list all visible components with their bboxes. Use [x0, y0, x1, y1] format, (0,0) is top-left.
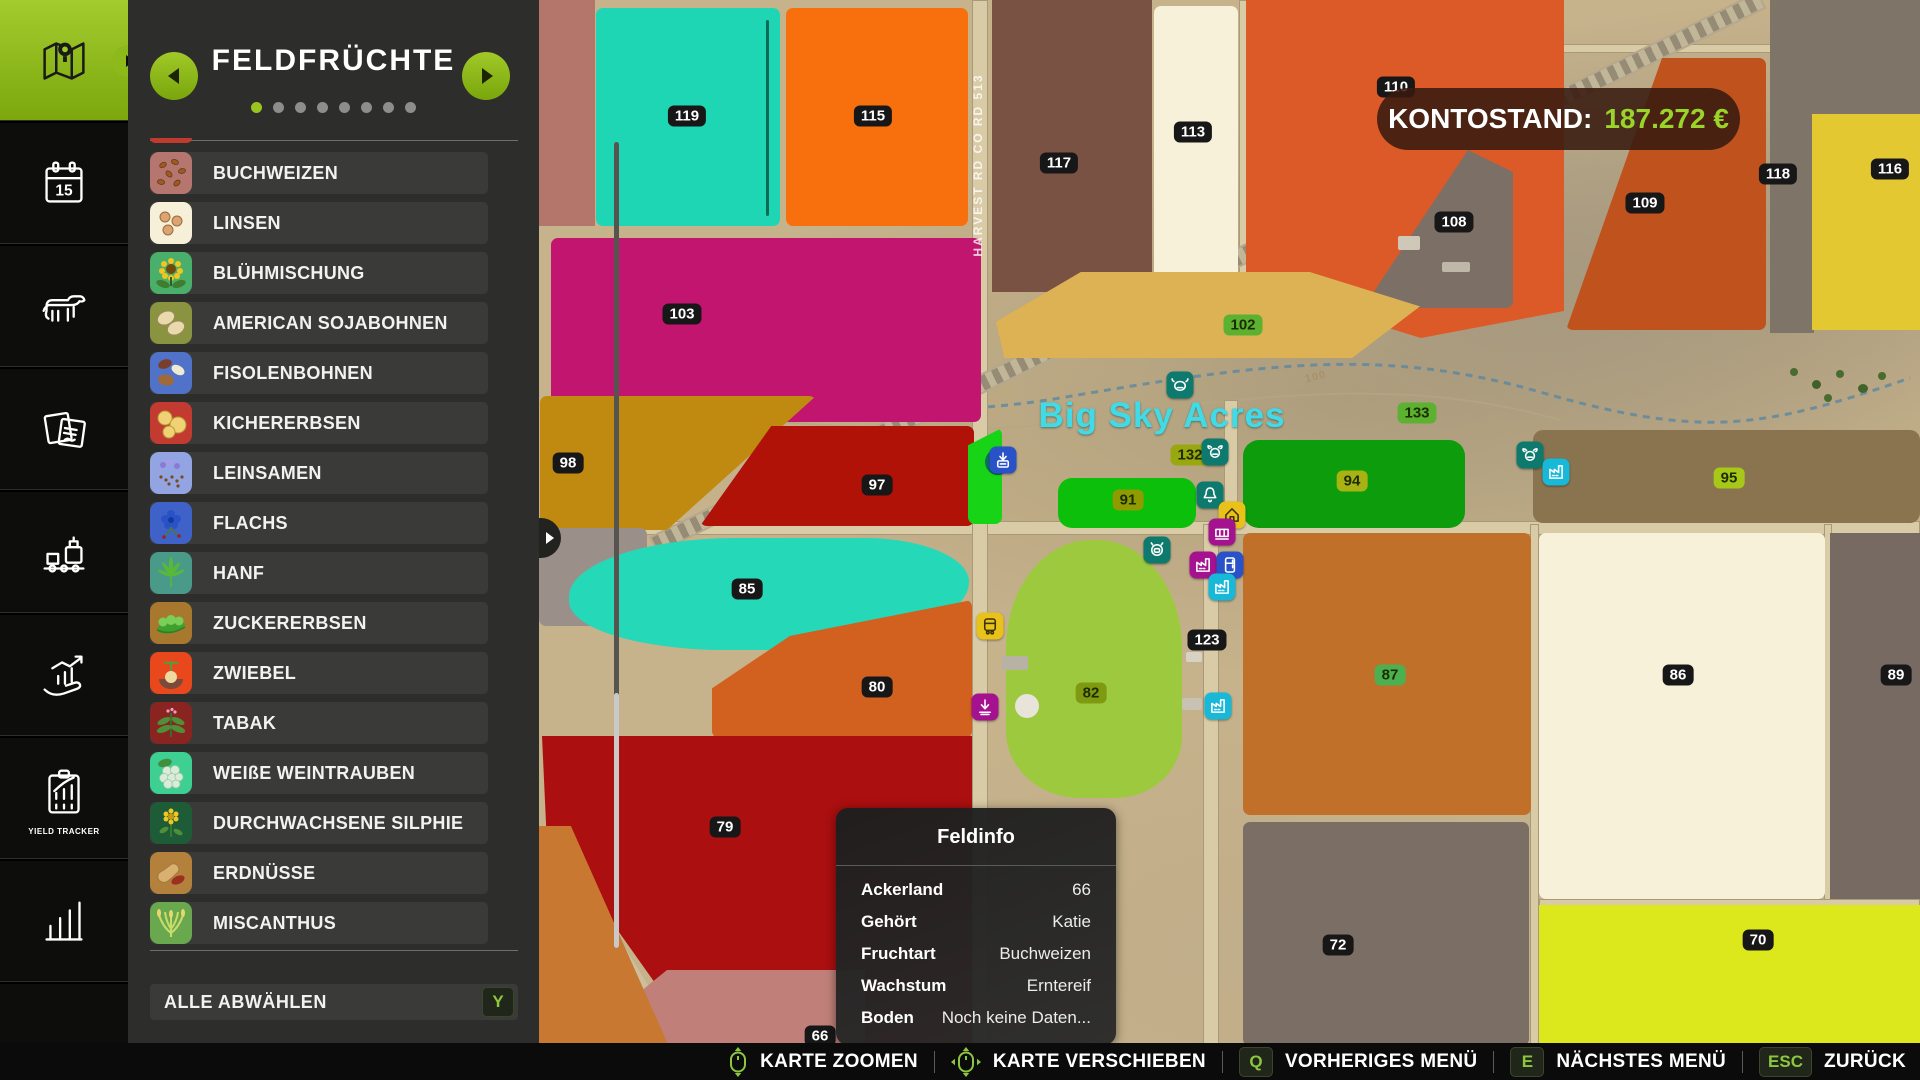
field-number-badge[interactable]: 118: [1759, 164, 1797, 185]
field-info-label: Ackerland: [861, 880, 943, 900]
map-decor: [1442, 262, 1470, 272]
keybind-hint: KARTE VERSCHIEBEN: [951, 1047, 1206, 1077]
crop-list-item[interactable]: BLÜHMISCHUNG: [150, 252, 488, 294]
crop-list-item[interactable]: ZWIEBEL: [150, 652, 488, 694]
page-dot-5[interactable]: [339, 102, 350, 113]
map-field[interactable]: [1812, 114, 1920, 330]
key-hint-e: E: [1510, 1047, 1544, 1077]
keybind-label: KARTE ZOOMEN: [760, 1051, 918, 1073]
field-number-badge[interactable]: 87: [1375, 665, 1406, 686]
flachs-crop-icon: [150, 502, 192, 544]
map-decor: [1015, 694, 1039, 718]
crop-label: FISOLENBOHNEN: [213, 352, 373, 394]
keybind-label: VORHERIGES MENÜ: [1285, 1051, 1477, 1073]
field-number-badge[interactable]: 91: [1113, 490, 1144, 511]
crop-label: BUCHWEIZEN: [213, 152, 338, 194]
field-info-row: Ackerland 66: [836, 874, 1116, 906]
crop-label: ZWIEBEL: [213, 652, 296, 694]
field-number-badge[interactable]: 113: [1174, 122, 1212, 143]
deselect-all-label: ALLE ABWÄHLEN: [164, 992, 327, 1013]
field-info-label: Wachstum: [861, 976, 946, 996]
map-decor: [1790, 368, 1798, 376]
key-hint-y: Y: [482, 987, 514, 1017]
factory-icon[interactable]: [1205, 693, 1232, 720]
pallet-icon[interactable]: [1209, 519, 1236, 546]
account-balance-panel: KONTOSTAND: 187.272 €: [1377, 88, 1740, 150]
pig-icon[interactable]: [1144, 537, 1171, 564]
balance-amount: 187.272 €: [1604, 103, 1729, 135]
map-field[interactable]: [1539, 533, 1825, 899]
zwiebel-crop-icon: [150, 652, 192, 694]
page-dot-3[interactable]: [295, 102, 306, 113]
farming-sim-map-screen: Big Sky Acres HARVEST RD CO RD 513 100 1…: [0, 0, 1920, 1080]
keybind-hint: KARTE ZOOMEN: [728, 1047, 918, 1077]
sidebar-item-finance[interactable]: [0, 615, 128, 738]
divider: [150, 950, 518, 951]
crop-label: FLACHS: [213, 502, 288, 544]
field-number-badge[interactable]: 95: [1714, 468, 1745, 489]
field-number-badge[interactable]: 103: [662, 304, 701, 325]
field-number-badge[interactable]: 123: [1187, 630, 1226, 651]
map-decor: [1186, 652, 1202, 662]
field-number-badge[interactable]: 85: [732, 579, 763, 600]
crop-list-item[interactable]: TABAK: [150, 702, 488, 744]
separator: [1222, 1051, 1223, 1073]
map-icon: [33, 30, 95, 92]
map-decor: [1398, 236, 1420, 250]
divider: [836, 865, 1116, 866]
field-number-badge[interactable]: 116: [1871, 159, 1909, 180]
next-page-button[interactable]: [462, 52, 510, 100]
sojabohnen-crop-icon: [150, 302, 192, 344]
svg-text:15: 15: [55, 182, 73, 199]
crop-list-item[interactable]: MISCANTHUS: [150, 902, 488, 944]
field-number-badge[interactable]: 89: [1881, 665, 1912, 686]
miscanthus-crop-icon: [150, 902, 192, 944]
linsen-crop-icon: [150, 202, 192, 244]
separator: [934, 1051, 935, 1073]
map-decor: [766, 20, 769, 216]
sidebar-item-contracts[interactable]: [0, 369, 128, 492]
crop-list-item[interactable]: KICHERERBSEN: [150, 402, 488, 444]
weintrauben-crop-icon: [150, 752, 192, 794]
map-field[interactable]: [1539, 905, 1920, 1048]
field-number-badge[interactable]: 72: [1323, 935, 1354, 956]
down-icon[interactable]: [972, 694, 999, 721]
field-info-panel: Feldinfo Ackerland 66Gehört KatieFruchta…: [836, 808, 1116, 1045]
cow-icon[interactable]: [1202, 439, 1229, 466]
mouse-move-icon: [951, 1047, 981, 1077]
key-hint-esc: ESC: [1759, 1047, 1812, 1077]
road: [1203, 524, 1219, 1080]
page-dot-2[interactable]: [273, 102, 284, 113]
map-field[interactable]: [1770, 115, 1814, 333]
deselect-all-button[interactable]: ALLE ABWÄHLEN Y: [150, 984, 518, 1020]
crop-list-scrollbar[interactable]: [614, 142, 619, 948]
field-info-value: Buchweizen: [999, 944, 1091, 964]
crop-label: WEIßE WEINTRAUBEN: [213, 752, 415, 794]
sidebar-item-yield-tracker[interactable]: YIELD TRACKER: [0, 738, 128, 861]
crop-list-item[interactable]: FLACHS: [150, 502, 488, 544]
crop-list-item[interactable]: DURCHWACHSENE SILPHIE: [150, 802, 488, 844]
map-decor: [1858, 384, 1868, 393]
field-info-value: Erntereif: [1027, 976, 1091, 996]
buchweizen-crop-icon: [150, 152, 192, 194]
crop-label: ZUCKERERBSEN: [213, 602, 367, 644]
field-number-badge[interactable]: 86: [1663, 665, 1694, 686]
page-dot-6[interactable]: [361, 102, 372, 113]
keybind-hint: ESCZURÜCK: [1759, 1047, 1906, 1077]
crop-list-item[interactable]: HANF: [150, 552, 488, 594]
crop-list-item[interactable]: AMERICAN SOJABOHNEN: [150, 302, 488, 344]
crop-label: KICHERERBSEN: [213, 402, 361, 444]
crop-label: LEINSAMEN: [213, 452, 322, 494]
cow-icon[interactable]: [1517, 442, 1544, 469]
train-icon[interactable]: [977, 613, 1004, 640]
crop-list-item[interactable]: BUCHWEIZEN: [150, 152, 488, 194]
road-name-label: HARVEST RD CO RD 513: [971, 73, 985, 256]
map-decor: [1812, 380, 1821, 389]
zuckererbsen-crop-icon: [150, 602, 192, 644]
leinsamen-crop-icon: [150, 452, 192, 494]
keybind-hint: ENÄCHSTES MENÜ: [1510, 1047, 1726, 1077]
bluehmischung-crop-icon: [150, 252, 192, 294]
keybind-label: KARTE VERSCHIEBEN: [993, 1051, 1206, 1073]
crops-panel: FELDFRÜCHTE BUCHWEIZENLINSENBLÜHMISCHUNG…: [128, 0, 539, 1080]
field-number-badge[interactable]: 79: [710, 817, 741, 838]
crop-label: LINSEN: [213, 202, 281, 244]
map-field[interactable]: [1006, 540, 1182, 798]
field-info-title: Feldinfo: [836, 808, 1116, 849]
farm-name-overlay: Big Sky Acres: [1038, 396, 1285, 436]
crop-list-item[interactable]: ZUCKERERBSEN: [150, 602, 488, 644]
map-field[interactable]: [1830, 533, 1920, 899]
factory-icon[interactable]: [1209, 574, 1236, 601]
field-number-badge[interactable]: 94: [1337, 471, 1368, 492]
map-decor: [1824, 394, 1832, 402]
kichererbsen-crop-icon: [150, 402, 192, 444]
sidebar-item-production[interactable]: [0, 492, 128, 615]
tabak-crop-icon: [150, 702, 192, 744]
crop-label: DURCHWACHSENE SILPHIE: [213, 802, 463, 844]
field-number-badge[interactable]: 108: [1434, 212, 1473, 233]
separator: [1742, 1051, 1743, 1073]
field-info-value: Katie: [1052, 912, 1091, 932]
field-info-row: Gehört Katie: [836, 906, 1116, 938]
map-field[interactable]: [992, 0, 1152, 292]
field-number-badge[interactable]: 109: [1625, 193, 1664, 214]
crop-label: BLÜHMISCHUNG: [213, 252, 365, 294]
prices-icon: [33, 891, 95, 953]
key-hint-q: Q: [1239, 1047, 1273, 1077]
page-dot-1[interactable]: [251, 102, 262, 113]
road: [1530, 524, 1539, 1080]
crop-label: AMERICAN SOJABOHNEN: [213, 302, 448, 344]
crop-list-item[interactable]: FISOLENBOHNEN: [150, 352, 488, 394]
panel-header: FELDFRÜCHTE: [128, 0, 539, 130]
field-info-label: Gehört: [861, 912, 917, 932]
scrollbar-thumb[interactable]: [614, 693, 619, 948]
field-info-row: Wachstum Erntereif: [836, 970, 1116, 1002]
scrolled-item-sliver: [150, 138, 192, 143]
sidebar-item-prices[interactable]: [0, 861, 128, 984]
field-number-badge[interactable]: 117: [1040, 153, 1078, 174]
crop-list-item[interactable]: WEIßE WEINTRAUBEN: [150, 752, 488, 794]
field-info-label: Fruchtart: [861, 944, 936, 964]
production-icon: [33, 522, 95, 584]
main-nav-sidebar: 15YIELD TRACKER: [0, 0, 128, 1080]
map-decor: [1182, 698, 1202, 710]
sidebar-item-animals[interactable]: [0, 246, 128, 369]
field-info-label: Boden: [861, 1008, 914, 1028]
bison-icon[interactable]: [1167, 372, 1194, 399]
finance-icon: [33, 645, 95, 707]
map-field[interactable]: [1154, 6, 1238, 284]
field-number-badge[interactable]: 97: [862, 475, 893, 496]
fisolenbohnen-crop-icon: [150, 352, 192, 394]
sidebar-item-calendar[interactable]: 15: [0, 123, 128, 246]
field-number-badge[interactable]: 98: [553, 453, 584, 474]
field-number-badge[interactable]: 82: [1076, 683, 1107, 704]
page-dot-8[interactable]: [405, 102, 416, 113]
map-decor: [1836, 370, 1844, 378]
download-icon[interactable]: [990, 447, 1017, 474]
pagination-dots: [128, 102, 539, 113]
field-info-row: Boden Noch keine Daten...: [836, 1002, 1116, 1034]
field-number-badge[interactable]: 102: [1223, 315, 1262, 336]
contracts-icon: [33, 399, 95, 461]
field-info-row: Fruchtart Buchweizen: [836, 938, 1116, 970]
keybind-label: NÄCHSTES MENÜ: [1556, 1051, 1726, 1073]
crop-list-item[interactable]: LINSEN: [150, 202, 488, 244]
yield-tracker-icon: [33, 762, 95, 824]
map-decor: [1002, 656, 1028, 670]
erdnuesse-crop-icon: [150, 852, 192, 894]
field-info-value: Noch keine Daten...: [942, 1008, 1091, 1028]
map-field[interactable]: [1770, 0, 1920, 115]
crop-list-item[interactable]: ERDNÜSSE: [150, 852, 488, 894]
page-dot-7[interactable]: [383, 102, 394, 113]
map-field[interactable]: [539, 0, 595, 226]
hanf-crop-icon: [150, 552, 192, 594]
animals-icon: [33, 276, 95, 338]
map-decor: [1878, 372, 1886, 380]
divider: [150, 140, 518, 141]
crop-list-item[interactable]: LEINSAMEN: [150, 452, 488, 494]
balance-label: KONTOSTAND:: [1388, 103, 1592, 135]
map-field[interactable]: [1243, 822, 1529, 1046]
sidebar-item-label: YIELD TRACKER: [28, 827, 99, 836]
field-number-badge[interactable]: 115: [854, 106, 892, 127]
field-info-value: 66: [1072, 880, 1091, 900]
keybind-hint: QVORHERIGES MENÜ: [1239, 1047, 1477, 1077]
crop-label: HANF: [213, 552, 264, 594]
page-dot-4[interactable]: [317, 102, 328, 113]
sidebar-item-map[interactable]: [0, 0, 128, 123]
crop-label: TABAK: [213, 702, 276, 744]
mouse-zoom-icon: [728, 1047, 748, 1077]
factory-icon[interactable]: [1543, 459, 1570, 486]
field-number-badge[interactable]: 119: [668, 106, 706, 127]
field-number-badge[interactable]: 80: [862, 677, 893, 698]
separator: [1493, 1051, 1494, 1073]
crop-label: ERDNÜSSE: [213, 852, 315, 894]
calendar-icon: 15: [33, 153, 95, 215]
silphie-crop-icon: [150, 802, 192, 844]
field-number-badge[interactable]: 133: [1397, 403, 1436, 424]
field-number-badge[interactable]: 70: [1743, 930, 1774, 951]
keybind-label: ZURÜCK: [1824, 1051, 1906, 1073]
keybind-bottom-bar: KARTE ZOOMENKARTE VERSCHIEBENQVORHERIGES…: [0, 1043, 1920, 1080]
crop-label: MISCANTHUS: [213, 902, 336, 944]
